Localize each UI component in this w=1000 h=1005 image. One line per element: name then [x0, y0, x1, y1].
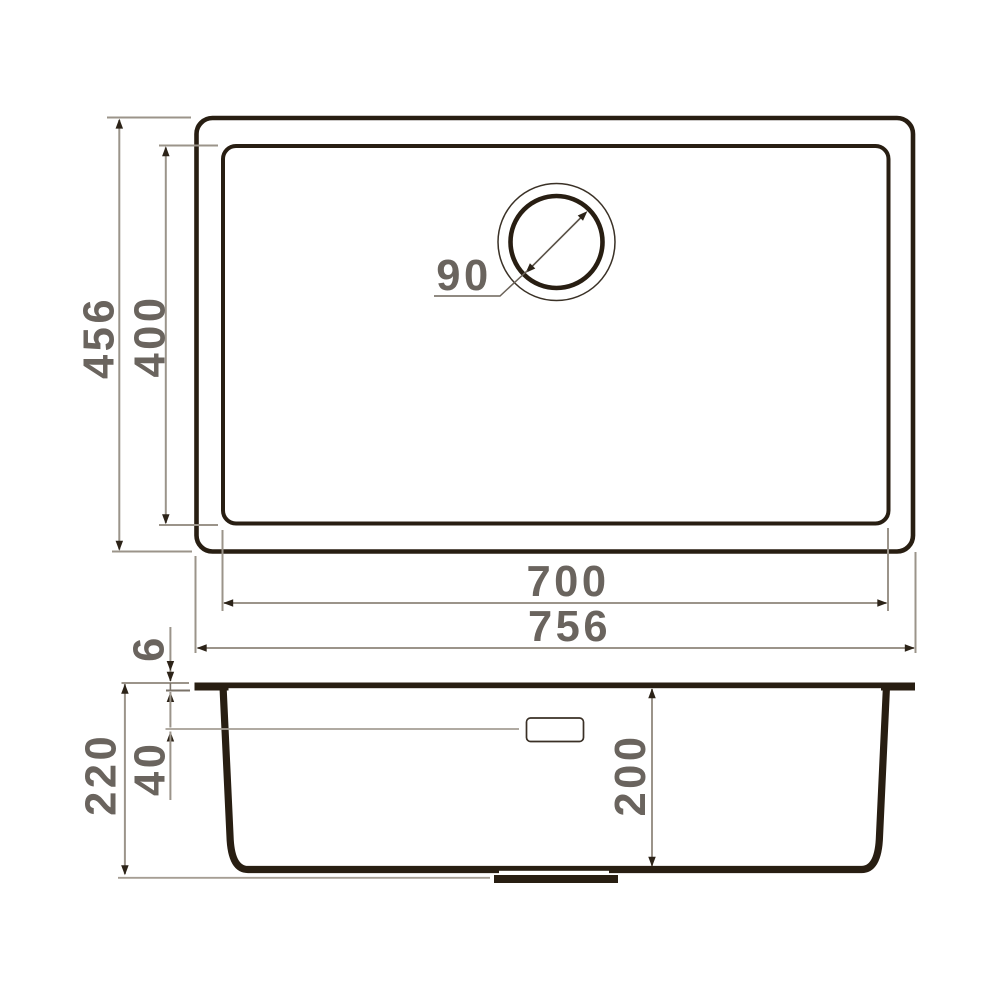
svg-text:756: 756 — [528, 603, 611, 651]
svg-text:456: 456 — [75, 296, 123, 379]
svg-text:700: 700 — [526, 558, 609, 606]
svg-text:40: 40 — [126, 741, 174, 796]
svg-text:6: 6 — [126, 634, 174, 662]
svg-text:90: 90 — [436, 252, 491, 300]
svg-text:200: 200 — [607, 733, 655, 816]
svg-text:220: 220 — [78, 733, 126, 816]
svg-text:400: 400 — [126, 294, 174, 377]
